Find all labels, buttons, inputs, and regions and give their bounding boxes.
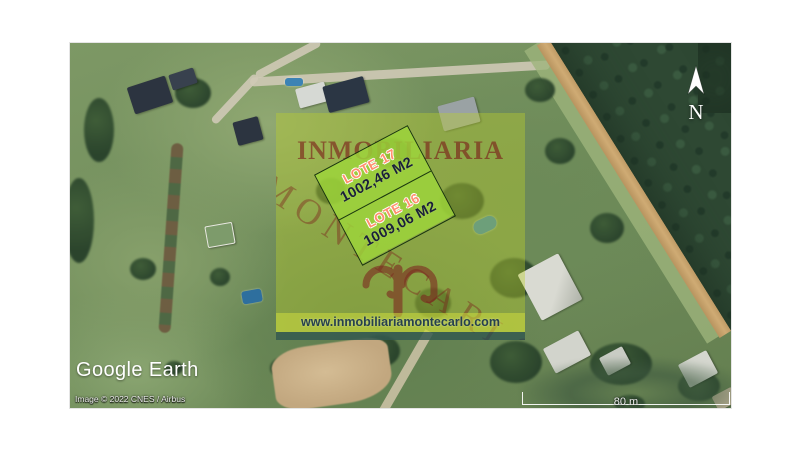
tree-cluster [130, 258, 156, 280]
website-banner: www.inmobiliariamontecarlo.com [276, 313, 525, 332]
tree-cluster [210, 268, 230, 286]
compass: N [682, 65, 710, 125]
tree-cluster [545, 138, 575, 164]
watermark-bottom-bar [276, 332, 525, 340]
tree-cluster [590, 213, 624, 243]
tree-line [158, 143, 183, 333]
google-earth-logo: Google Earth [76, 359, 199, 382]
house-roof [232, 116, 263, 146]
swimming-pool [285, 78, 303, 86]
swimming-pool [241, 288, 263, 304]
house-roof-green [204, 222, 235, 249]
tree-cluster [70, 178, 94, 263]
tree-cluster [84, 98, 114, 162]
north-label: N [682, 100, 710, 125]
map-attribution: Image © 2022 CNES / Airbus [75, 394, 185, 404]
watermark-overlay: LOTE 17 1002,46 M2 LOTE 16 1009,06 M2 IN… [276, 113, 525, 340]
house-roof [127, 76, 174, 115]
website-url-text: www.inmobiliariamontecarlo.com [301, 315, 500, 329]
scale-bar-label: 80 m [614, 396, 638, 408]
satellite-image: LOTE 17 1002,46 M2 LOTE 16 1009,06 M2 IN… [70, 43, 731, 408]
dirt-patch [269, 335, 394, 408]
scale-bar: 80 m [522, 392, 730, 405]
north-arrow-icon [682, 65, 710, 97]
listing-image: LOTE 17 1002,46 M2 LOTE 16 1009,06 M2 IN… [0, 0, 800, 450]
tree-cluster [525, 78, 555, 102]
